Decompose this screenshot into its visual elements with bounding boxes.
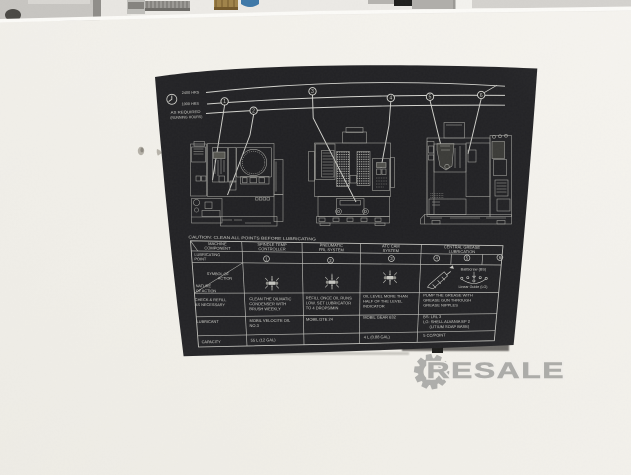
svg-text:RESALE: RESALE: [427, 358, 566, 383]
